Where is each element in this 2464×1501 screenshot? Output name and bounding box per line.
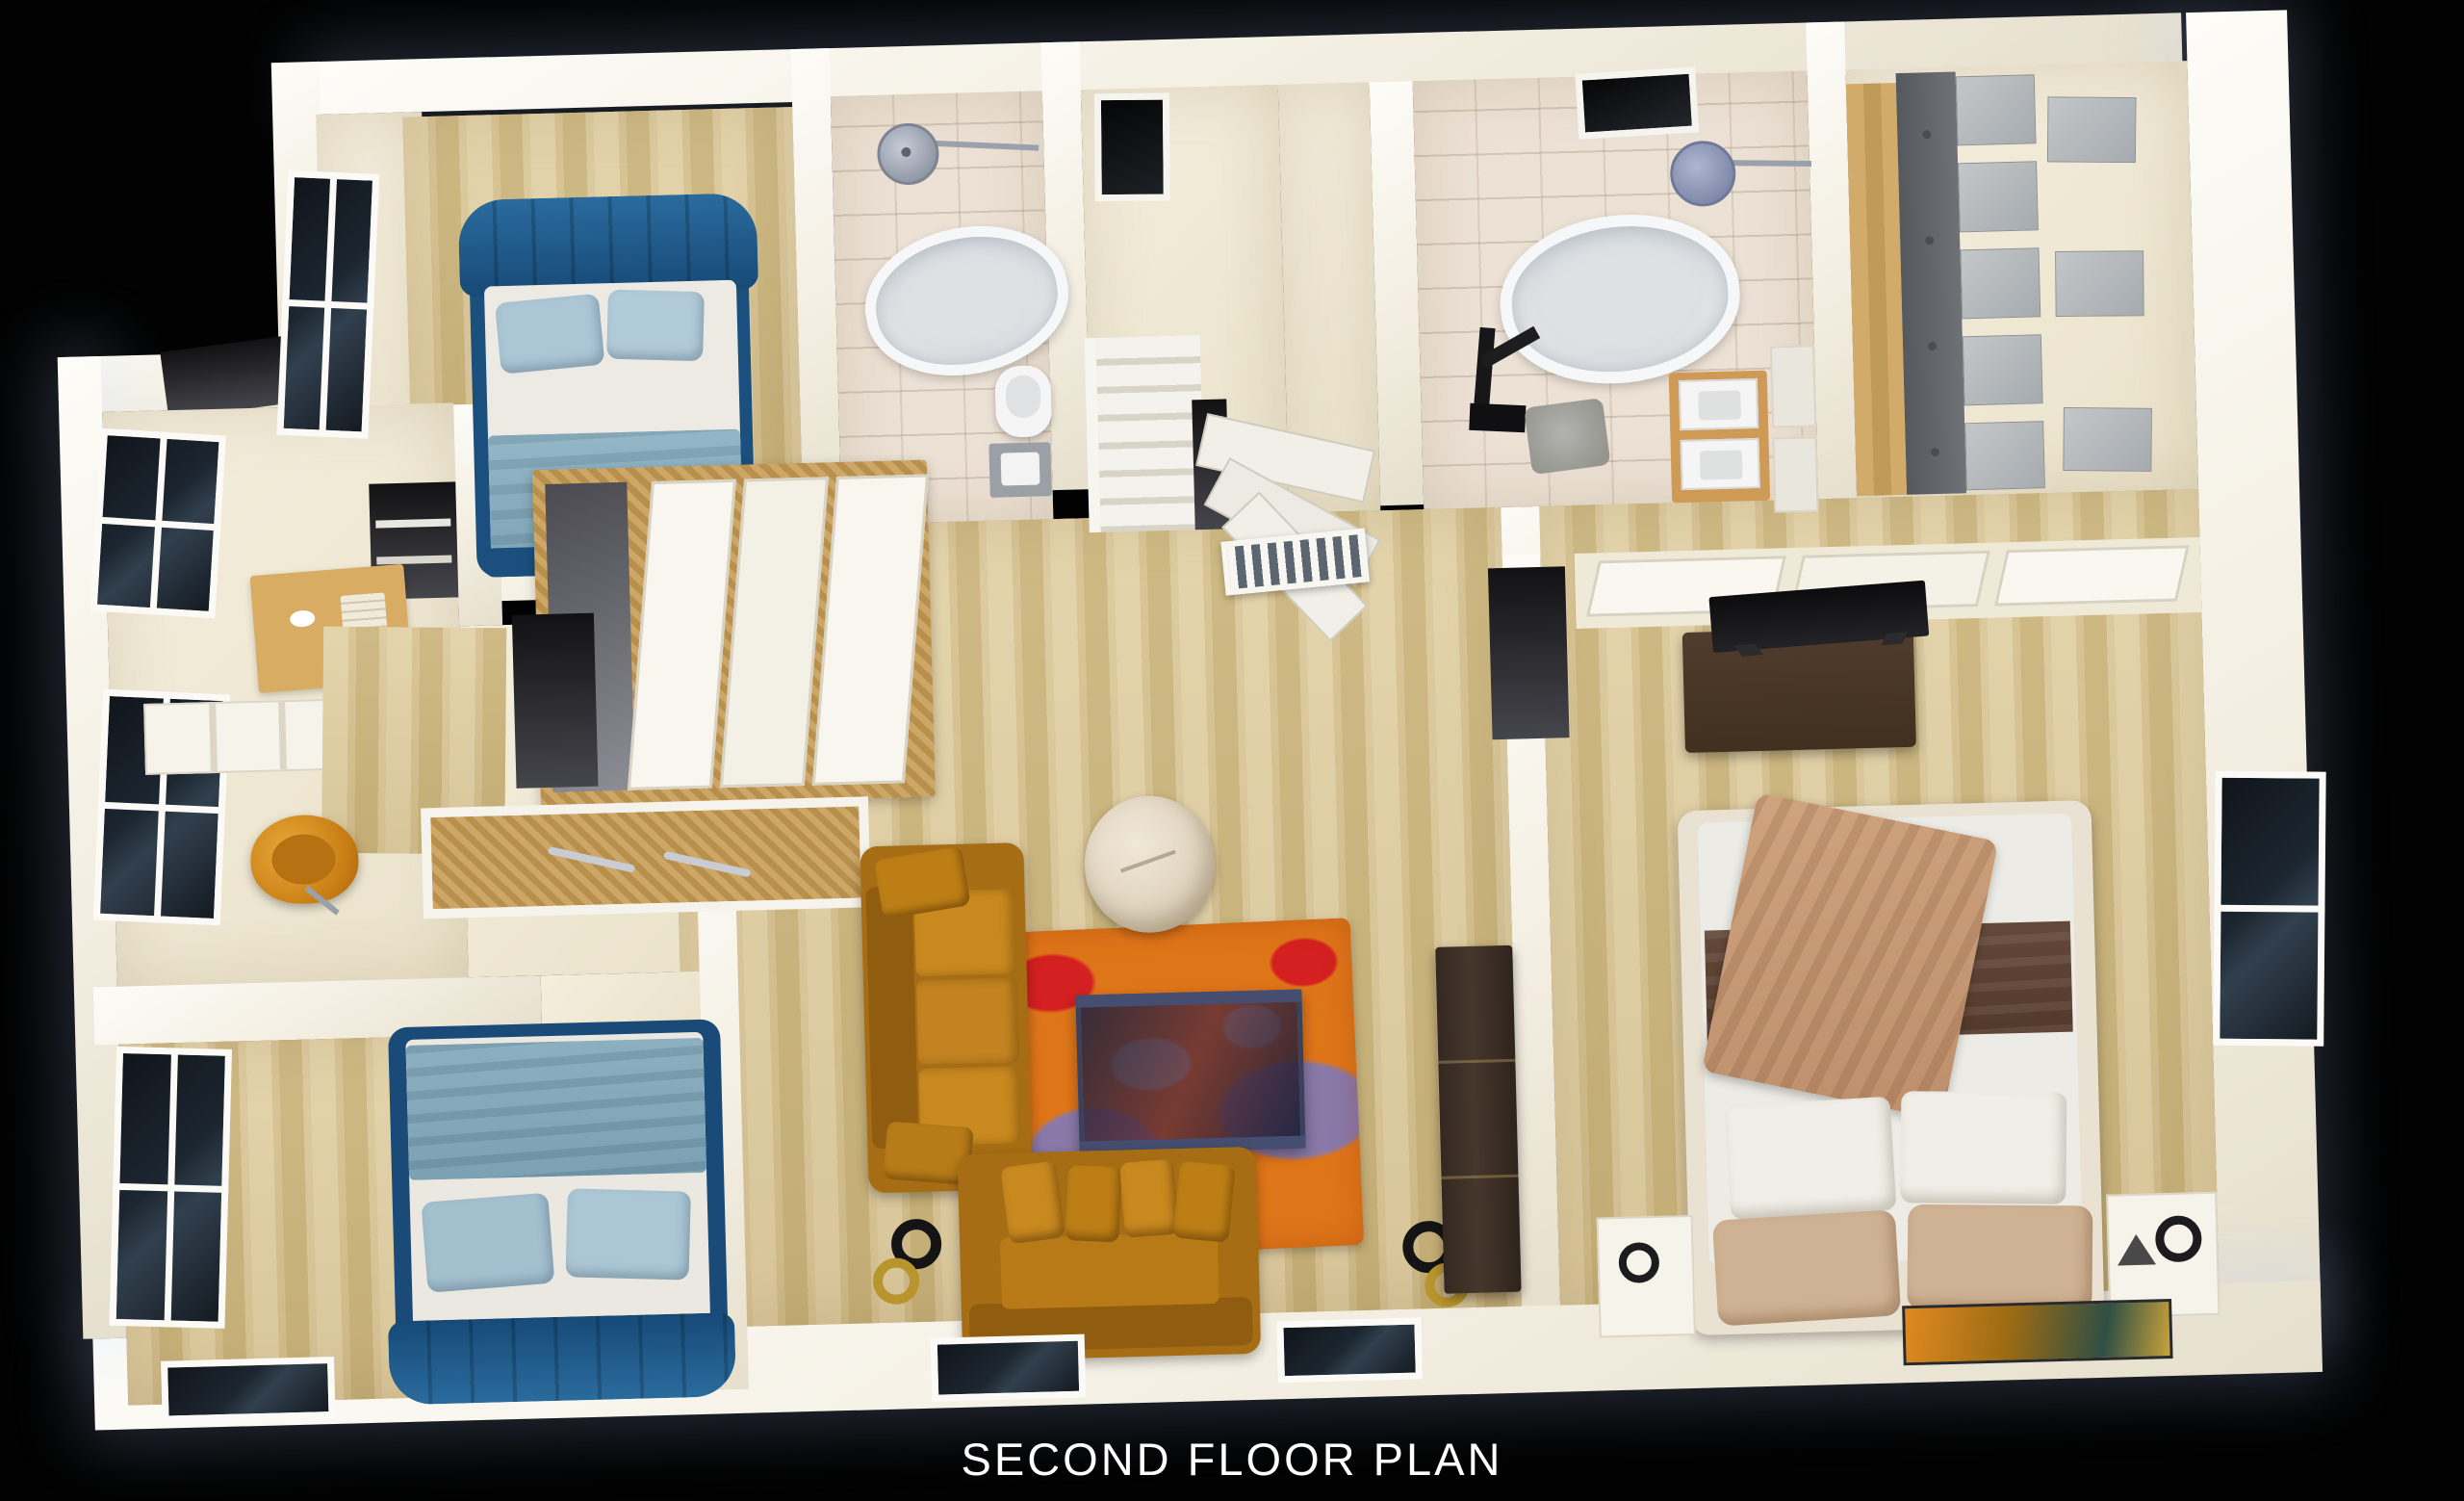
console-seam	[1441, 1175, 1518, 1179]
bed-pillow	[421, 1193, 554, 1293]
closet-cabinet-box	[1956, 74, 2037, 145]
shelf-divider	[209, 704, 218, 771]
dresser-handle	[663, 851, 752, 878]
bedroom1-window	[276, 170, 379, 439]
shower-head-center	[901, 147, 911, 157]
decor-ring	[2155, 1215, 2202, 1262]
wall-art	[1902, 1299, 2173, 1365]
sofa-pillow	[1172, 1161, 1235, 1243]
toilet-seat	[1006, 375, 1041, 418]
sofa-back	[865, 886, 918, 1149]
closet-door-panel	[1994, 545, 2190, 606]
bathroom2-vanity	[1669, 371, 1770, 504]
bed-headboard-cushion	[1907, 1204, 2092, 1312]
bottom-wall-window	[1276, 1317, 1423, 1383]
lamp-shade-gold	[872, 1257, 919, 1305]
bedroom2-window	[110, 1047, 233, 1329]
coffee-table	[1075, 990, 1305, 1154]
hall-dark-passage	[512, 613, 599, 789]
master-doorway	[1488, 566, 1570, 739]
closet-cabinet-box	[2063, 407, 2152, 472]
closet-back-panel	[1896, 71, 1966, 494]
vanity-sink	[1680, 438, 1759, 490]
bathroom2-mirror	[1770, 345, 1816, 427]
sink-basin	[1700, 450, 1743, 479]
shelf-divider	[278, 702, 287, 769]
vanity-sink	[1679, 378, 1758, 430]
bathroom2-mirror	[1772, 436, 1818, 512]
window-muntin	[2214, 905, 2324, 913]
nightstand	[1597, 1215, 1696, 1338]
bed-pillow	[1725, 1097, 1897, 1220]
office-window	[90, 428, 226, 619]
closet-shelf	[376, 556, 451, 565]
bed-pillow	[566, 1188, 691, 1280]
wardrobe-door-panel	[720, 477, 829, 788]
closet-cabinet-box	[1963, 334, 2043, 405]
bottom-wall-window	[931, 1334, 1087, 1402]
closet-cabinet-box	[1958, 161, 2039, 232]
sofa-pillow	[1119, 1159, 1179, 1238]
ottoman-stitch	[1120, 850, 1176, 873]
closet-cabinet-box	[1964, 421, 2045, 490]
bed-headboard-cushion	[1712, 1209, 1901, 1326]
closet-cabinet-box	[1960, 247, 2040, 319]
bedroom2-bottom-window	[161, 1357, 336, 1423]
office-chair	[249, 814, 360, 913]
dresser-handle	[548, 846, 636, 873]
decor-ring	[1618, 1242, 1659, 1283]
sink-basin	[1698, 390, 1741, 420]
tv-console	[1435, 945, 1521, 1294]
stairwell-skylight	[1094, 93, 1170, 202]
window-pane	[1276, 1317, 1423, 1383]
sofa-left	[860, 842, 1032, 1193]
wardrobe-door-panel	[628, 479, 736, 790]
vanity-sink	[1001, 452, 1040, 485]
bed-headboard	[388, 1312, 736, 1405]
bed-pillow	[495, 294, 605, 375]
closet-shelf	[375, 519, 450, 529]
bathroom1-toilet	[994, 365, 1052, 437]
window-pane	[931, 1334, 1087, 1402]
cabinet-knob	[1922, 130, 1931, 139]
sofa-bottom	[958, 1147, 1262, 1361]
master-window	[2213, 771, 2325, 1047]
bathroom2-bath-mat	[1524, 398, 1610, 475]
stairs-flight	[1085, 335, 1205, 532]
bed-pillow	[606, 290, 705, 362]
page-title: SECOND FLOOR PLAN	[0, 1433, 2464, 1486]
bathroom2-fixture-box	[1469, 403, 1526, 433]
sofa-pillow	[1000, 1160, 1065, 1244]
bed-master	[1678, 800, 2105, 1335]
cabinet-knob	[1931, 448, 1939, 456]
bathroom2-shower-arm	[1725, 160, 1811, 167]
cabinet-knob	[1928, 342, 1937, 350]
bed-blanket	[406, 1038, 707, 1180]
computer-mouse	[290, 609, 316, 628]
bathroom1-vanity	[988, 442, 1051, 498]
sofa-seat	[1000, 1232, 1219, 1309]
wardrobe-door-panel	[812, 475, 929, 786]
cabinet-knob	[1925, 236, 1934, 245]
closet-cabinet-box	[2055, 250, 2144, 317]
closet-cabinet-box	[2047, 96, 2137, 163]
floor-lamp	[869, 1212, 968, 1321]
sofa-cushion	[916, 977, 1019, 1065]
sofa-pillow	[1065, 1165, 1121, 1242]
decor-pyramid	[2117, 1233, 2156, 1265]
bed-pillow	[1900, 1091, 2066, 1203]
floor-plan	[74, 0, 2343, 1444]
screenshot-stage: SECOND FLOOR PLAN	[0, 0, 2464, 1501]
window-pane	[161, 1357, 336, 1423]
bathroom2-skylight	[1575, 66, 1699, 140]
bed-bedroom2	[380, 1016, 736, 1405]
console-seam	[1438, 1059, 1515, 1064]
hall-low-dresser	[421, 796, 871, 919]
